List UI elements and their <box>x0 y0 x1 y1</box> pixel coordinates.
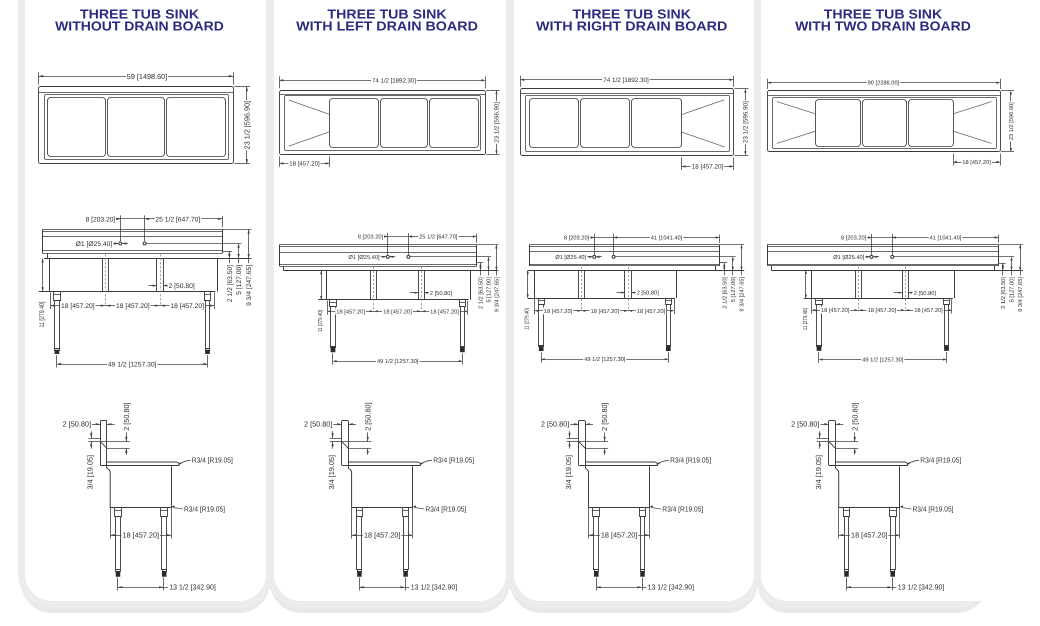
svg-text:WITH RIGHT DRAIN BOARD: WITH RIGHT DRAIN BOARD <box>536 18 727 33</box>
svg-text:5 [127.00]: 5 [127.00] <box>486 277 493 303</box>
svg-text:R3/4 [R19.05]: R3/4 [R19.05] <box>913 504 954 513</box>
svg-text:R3/4 [R19.05]: R3/4 [R19.05] <box>662 504 703 513</box>
svg-text:18 [457.20]: 18 [457.20] <box>601 531 638 540</box>
svg-text:Ø1 [Ø25.40]: Ø1 [Ø25.40] <box>555 254 586 261</box>
svg-text:18 [457.20]: 18 [457.20] <box>851 531 888 540</box>
svg-text:2 [50.80]: 2 [50.80] <box>304 420 332 429</box>
svg-text:59 [1498.60]: 59 [1498.60] <box>127 72 167 81</box>
svg-text:49 1/2 [1257.30]: 49 1/2 [1257.30] <box>108 361 157 368</box>
svg-text:18 [457.20]: 18 [457.20] <box>868 307 897 314</box>
svg-text:2 [50.80]: 2 [50.80] <box>169 283 195 290</box>
svg-text:23 1/2 [596.90]: 23 1/2 [596.90] <box>242 101 251 150</box>
svg-text:23 1/2 [596.90]: 23 1/2 [596.90] <box>494 102 501 143</box>
svg-text:2 [50.80]: 2 [50.80] <box>363 402 372 430</box>
svg-text:18 [457.20]: 18 [457.20] <box>364 531 401 540</box>
svg-text:18 [457.20]: 18 [457.20] <box>962 159 991 166</box>
svg-text:9 3/4 [247.65]: 9 3/4 [247.65] <box>739 276 746 311</box>
svg-text:2 [50.80]: 2 [50.80] <box>850 402 859 430</box>
svg-text:Ø1 [Ø25.40]: Ø1 [Ø25.40] <box>833 254 865 261</box>
svg-text:18 [457.20]: 18 [457.20] <box>289 161 320 168</box>
svg-text:2 [50.80]: 2 [50.80] <box>600 402 609 430</box>
svg-text:Ø1 [Ø25.40]: Ø1 [Ø25.40] <box>348 254 380 261</box>
svg-text:2 [50.80]: 2 [50.80] <box>791 420 819 429</box>
svg-text:3/4 [19.05]: 3/4 [19.05] <box>86 455 95 490</box>
svg-text:18 [457.20]: 18 [457.20] <box>637 308 666 315</box>
svg-text:25 1/2 [647.70]: 25 1/2 [647.70] <box>419 234 458 241</box>
svg-text:18 [457.20]: 18 [457.20] <box>170 303 204 310</box>
svg-text:41 [1041.40]: 41 [1041.40] <box>930 235 962 242</box>
svg-text:9 3/4 [247.65]: 9 3/4 [247.65] <box>1017 277 1024 312</box>
svg-text:18 [457.20]: 18 [457.20] <box>430 308 459 315</box>
svg-text:41 [1041.40]: 41 [1041.40] <box>651 235 683 242</box>
svg-text:R3/4 [R19.05]: R3/4 [R19.05] <box>433 456 474 465</box>
svg-text:5 [127.00]: 5 [127.00] <box>1009 277 1016 303</box>
svg-text:18 [457.20]: 18 [457.20] <box>336 308 365 315</box>
svg-text:R3/4 [R19.05]: R3/4 [R19.05] <box>920 456 961 465</box>
svg-text:2 1/2 [63.50]: 2 1/2 [63.50] <box>1000 277 1007 309</box>
svg-text:11 [279.40]: 11 [279.40] <box>317 309 324 332</box>
svg-text:2 [50.80]: 2 [50.80] <box>430 290 453 297</box>
svg-text:WITH LEFT DRAIN BOARD: WITH LEFT DRAIN BOARD <box>296 18 478 33</box>
svg-text:49 1/2 [1257.30]: 49 1/2 [1257.30] <box>862 357 904 364</box>
svg-text:2 [50.80]: 2 [50.80] <box>914 290 937 297</box>
svg-text:25 1/2 [647.70]: 25 1/2 [647.70] <box>155 216 200 223</box>
svg-text:13 1/2 [342.90]: 13 1/2 [342.90] <box>898 583 945 592</box>
svg-text:18 [457.20]: 18 [457.20] <box>61 303 95 310</box>
svg-text:R3/4 [R19.05]: R3/4 [R19.05] <box>670 456 711 465</box>
svg-text:49 1/2 [1257.30]: 49 1/2 [1257.30] <box>377 358 419 365</box>
svg-text:R3/4 [R19.05]: R3/4 [R19.05] <box>184 504 225 513</box>
svg-text:18 [457.20]: 18 [457.20] <box>692 164 724 171</box>
svg-text:13 1/2 [342.90]: 13 1/2 [342.90] <box>411 583 458 592</box>
svg-text:R3/4 [R19.05]: R3/4 [R19.05] <box>425 504 466 513</box>
svg-text:18 [457.20]: 18 [457.20] <box>116 303 150 310</box>
svg-text:74 1/2 [1892.30]: 74 1/2 [1892.30] <box>372 78 416 85</box>
svg-text:23 1/2 [596.90]: 23 1/2 [596.90] <box>743 101 750 143</box>
svg-text:18 [457.20]: 18 [457.20] <box>123 531 160 540</box>
svg-text:74 1/2 [1892.30]: 74 1/2 [1892.30] <box>603 77 649 84</box>
svg-text:11 [279.40]: 11 [279.40] <box>39 301 46 327</box>
svg-text:2 1/2 [63.50]: 2 1/2 [63.50] <box>478 277 485 309</box>
svg-text:5 [127.00]: 5 [127.00] <box>236 265 243 295</box>
svg-text:90 [2286.00]: 90 [2286.00] <box>868 80 900 87</box>
svg-text:3/4 [19.05]: 3/4 [19.05] <box>327 455 336 490</box>
svg-text:11 [279.40]: 11 [279.40] <box>524 308 531 330</box>
svg-text:2 [50.80]: 2 [50.80] <box>122 402 131 430</box>
svg-text:8 [203.20]: 8 [203.20] <box>564 235 590 242</box>
svg-text:Ø1 [Ø25.40]: Ø1 [Ø25.40] <box>76 241 113 248</box>
svg-text:18 [457.20]: 18 [457.20] <box>591 308 620 315</box>
svg-text:13 1/2 [342.90]: 13 1/2 [342.90] <box>648 583 695 592</box>
svg-text:WITH TWO DRAIN BOARD: WITH TWO DRAIN BOARD <box>795 18 971 33</box>
svg-text:2 1/2 [63.50]: 2 1/2 [63.50] <box>227 265 234 302</box>
svg-text:2 [50.80]: 2 [50.80] <box>637 290 660 297</box>
svg-text:2 [50.80]: 2 [50.80] <box>541 420 569 429</box>
svg-text:5 [127.00]: 5 [127.00] <box>730 276 737 302</box>
svg-text:8 [203.20]: 8 [203.20] <box>841 235 867 242</box>
svg-text:R3/4 [R19.05]: R3/4 [R19.05] <box>192 456 233 465</box>
svg-text:18 [457.20]: 18 [457.20] <box>821 307 850 314</box>
svg-text:18 [457.20]: 18 [457.20] <box>914 307 943 314</box>
svg-text:9 3/4 [247.65]: 9 3/4 [247.65] <box>246 265 253 306</box>
svg-text:23 1/2 [596.90]: 23 1/2 [596.90] <box>1008 102 1015 140</box>
svg-text:49 1/2 [1257.30]: 49 1/2 [1257.30] <box>584 356 626 363</box>
svg-text:18 [457.20]: 18 [457.20] <box>544 308 573 315</box>
svg-text:3/4 [19.05]: 3/4 [19.05] <box>564 455 573 490</box>
svg-text:11 [279.40]: 11 [279.40] <box>802 308 809 330</box>
svg-text:3/4 [19.05]: 3/4 [19.05] <box>814 455 823 490</box>
svg-text:2 1/2 [63.50]: 2 1/2 [63.50] <box>721 276 728 308</box>
svg-text:2 [50.80]: 2 [50.80] <box>63 420 91 429</box>
svg-text:9 3/4 [247.65]: 9 3/4 [247.65] <box>494 277 501 312</box>
svg-text:WITHOUT DRAIN BOARD: WITHOUT DRAIN BOARD <box>55 18 224 33</box>
svg-text:8 [203.20]: 8 [203.20] <box>86 216 116 223</box>
svg-text:13 1/2 [342.90]: 13 1/2 [342.90] <box>169 583 216 592</box>
svg-text:8 [203.20]: 8 [203.20] <box>358 234 384 241</box>
svg-text:18 [457.20]: 18 [457.20] <box>383 308 412 315</box>
